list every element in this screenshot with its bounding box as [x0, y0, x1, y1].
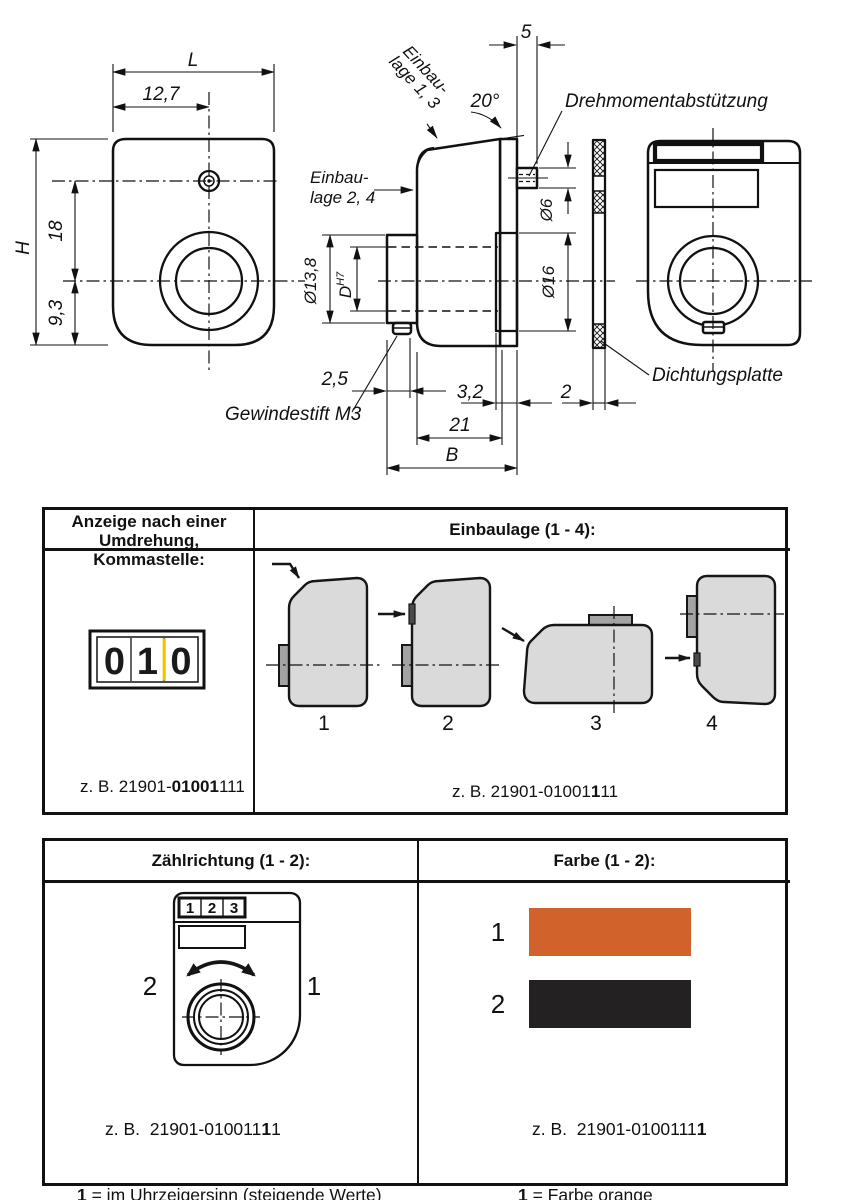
- t1-header-left: Anzeige nach einer Umdrehung, Kommastell…: [45, 510, 255, 551]
- dim-B: B: [446, 445, 459, 466]
- swatch-label-2: 2: [491, 989, 505, 1019]
- einbaulage-position-4: [665, 576, 784, 704]
- label-window: [655, 170, 758, 207]
- position-label-4: 4: [706, 712, 718, 735]
- t2-left-code: z. B. 21901-01001111: [45, 1118, 416, 1140]
- counter-digit: 1: [137, 641, 158, 683]
- catalog-page: L 12,7 H 18 9,3: [0, 0, 846, 1200]
- t1-code-line: z. B. 21901-01001111: [45, 777, 252, 797]
- t2-left-text: z. B. 21901-01001111 1 = im Uhrzeigersin…: [45, 1074, 416, 1200]
- dim-2: 2: [560, 382, 572, 403]
- bore-D-H7: DH7: [335, 271, 355, 298]
- rear-view: [636, 128, 812, 372]
- technical-drawing: L 12,7 H 18 9,3: [0, 0, 846, 500]
- dim-2-5: 2,5: [321, 369, 349, 390]
- counter-digit: 0: [170, 641, 191, 683]
- farbe-swatches: 1 2: [419, 883, 790, 1093]
- dim-21: 21: [448, 415, 470, 436]
- dim-5: 5: [521, 22, 532, 43]
- t2-right-text: z. B. 21901-01001111 1 = Farbe orange 2 …: [419, 1074, 790, 1200]
- label-einbaulage-2-4: Einbau-lage 2, 4: [310, 168, 375, 207]
- table-anzeige-einbaulage: Anzeige nach einer Umdrehung, Kommastell…: [42, 507, 788, 815]
- counter-display: 0 1 0: [45, 551, 255, 737]
- counter-digit: 0: [104, 641, 125, 683]
- front-view: L 12,7 H 18 9,3: [13, 50, 305, 372]
- t1-header-right-label: Einbaulage (1 - 4):: [449, 520, 595, 539]
- dia-16: Ø16: [539, 265, 558, 299]
- dia-13-8: Ø13,8: [301, 257, 320, 305]
- display-slot: [655, 144, 762, 161]
- table-zaehlrichtung-farbe: Zählrichtung (1 - 2): Farbe (1 - 2): 1 2…: [42, 838, 788, 1186]
- dim-H: H: [13, 241, 34, 255]
- decimal-marker: [163, 639, 166, 681]
- t1-header-right: Einbaulage (1 - 4):: [255, 510, 790, 551]
- dim-12-7: 12,7: [143, 84, 181, 105]
- direction-label-1: 1: [307, 971, 321, 1001]
- direction-label-2: 2: [143, 971, 157, 1001]
- t2-header-right: Farbe (1 - 2):: [419, 841, 790, 883]
- t1-header-left-line1: Anzeige nach einer: [45, 512, 253, 531]
- einbaulage-position-2: [378, 578, 502, 706]
- display-digit: 2: [208, 900, 216, 917]
- angle-20: 20°: [470, 91, 500, 112]
- einbaulage-position-1: [266, 564, 380, 706]
- t1-right-code: z. B. 21901-01001111: [280, 782, 790, 802]
- swatch-schwarz: [529, 980, 691, 1028]
- swatch-orange: [529, 908, 691, 956]
- display-digit: 1: [186, 900, 194, 917]
- dim-9-3: 9,3: [46, 299, 67, 326]
- einbaulage-position-3: [502, 606, 652, 715]
- label-gewindestift: Gewindestift M3: [225, 404, 362, 425]
- position-label-2: 2: [442, 712, 454, 735]
- swatch-label-1: 1: [491, 917, 505, 947]
- t2-right-legend1: 1 = Farbe orange: [419, 1184, 790, 1200]
- label-drehmomentabstuetzung: Drehmomentabstützung: [565, 91, 768, 112]
- t2-header-left: Zählrichtung (1 - 2):: [45, 841, 419, 883]
- position-label-3: 3: [590, 712, 602, 735]
- t2-left-legend1: 1 = im Uhrzeigersinn (steigende Werte): [45, 1184, 416, 1200]
- label-dichtungsplatte: Dichtungsplatte: [652, 365, 783, 386]
- zaehlrichtung-figure: 1 2 3 2 1: [45, 883, 416, 1093]
- t2-right-code: z. B. 21901-01001111: [419, 1118, 790, 1140]
- t2-header-left-label: Zählrichtung (1 - 2):: [152, 851, 311, 870]
- dim-3-2: 3,2: [457, 382, 484, 403]
- label-einbaulage-1-3: Einbau-lage 1, 3: [385, 40, 456, 113]
- display-digit: 3: [230, 900, 238, 917]
- einbaulage-figures: 1 2 3 4: [255, 551, 790, 751]
- label-window: [179, 926, 245, 948]
- dim-L: L: [188, 50, 199, 71]
- dia-6: Ø6: [537, 198, 556, 222]
- t2-header-right-label: Farbe (1 - 2):: [553, 851, 655, 870]
- position-label-1: 1: [318, 712, 330, 735]
- rotation-double-arrow: [188, 962, 254, 975]
- dim-18: 18: [46, 220, 67, 242]
